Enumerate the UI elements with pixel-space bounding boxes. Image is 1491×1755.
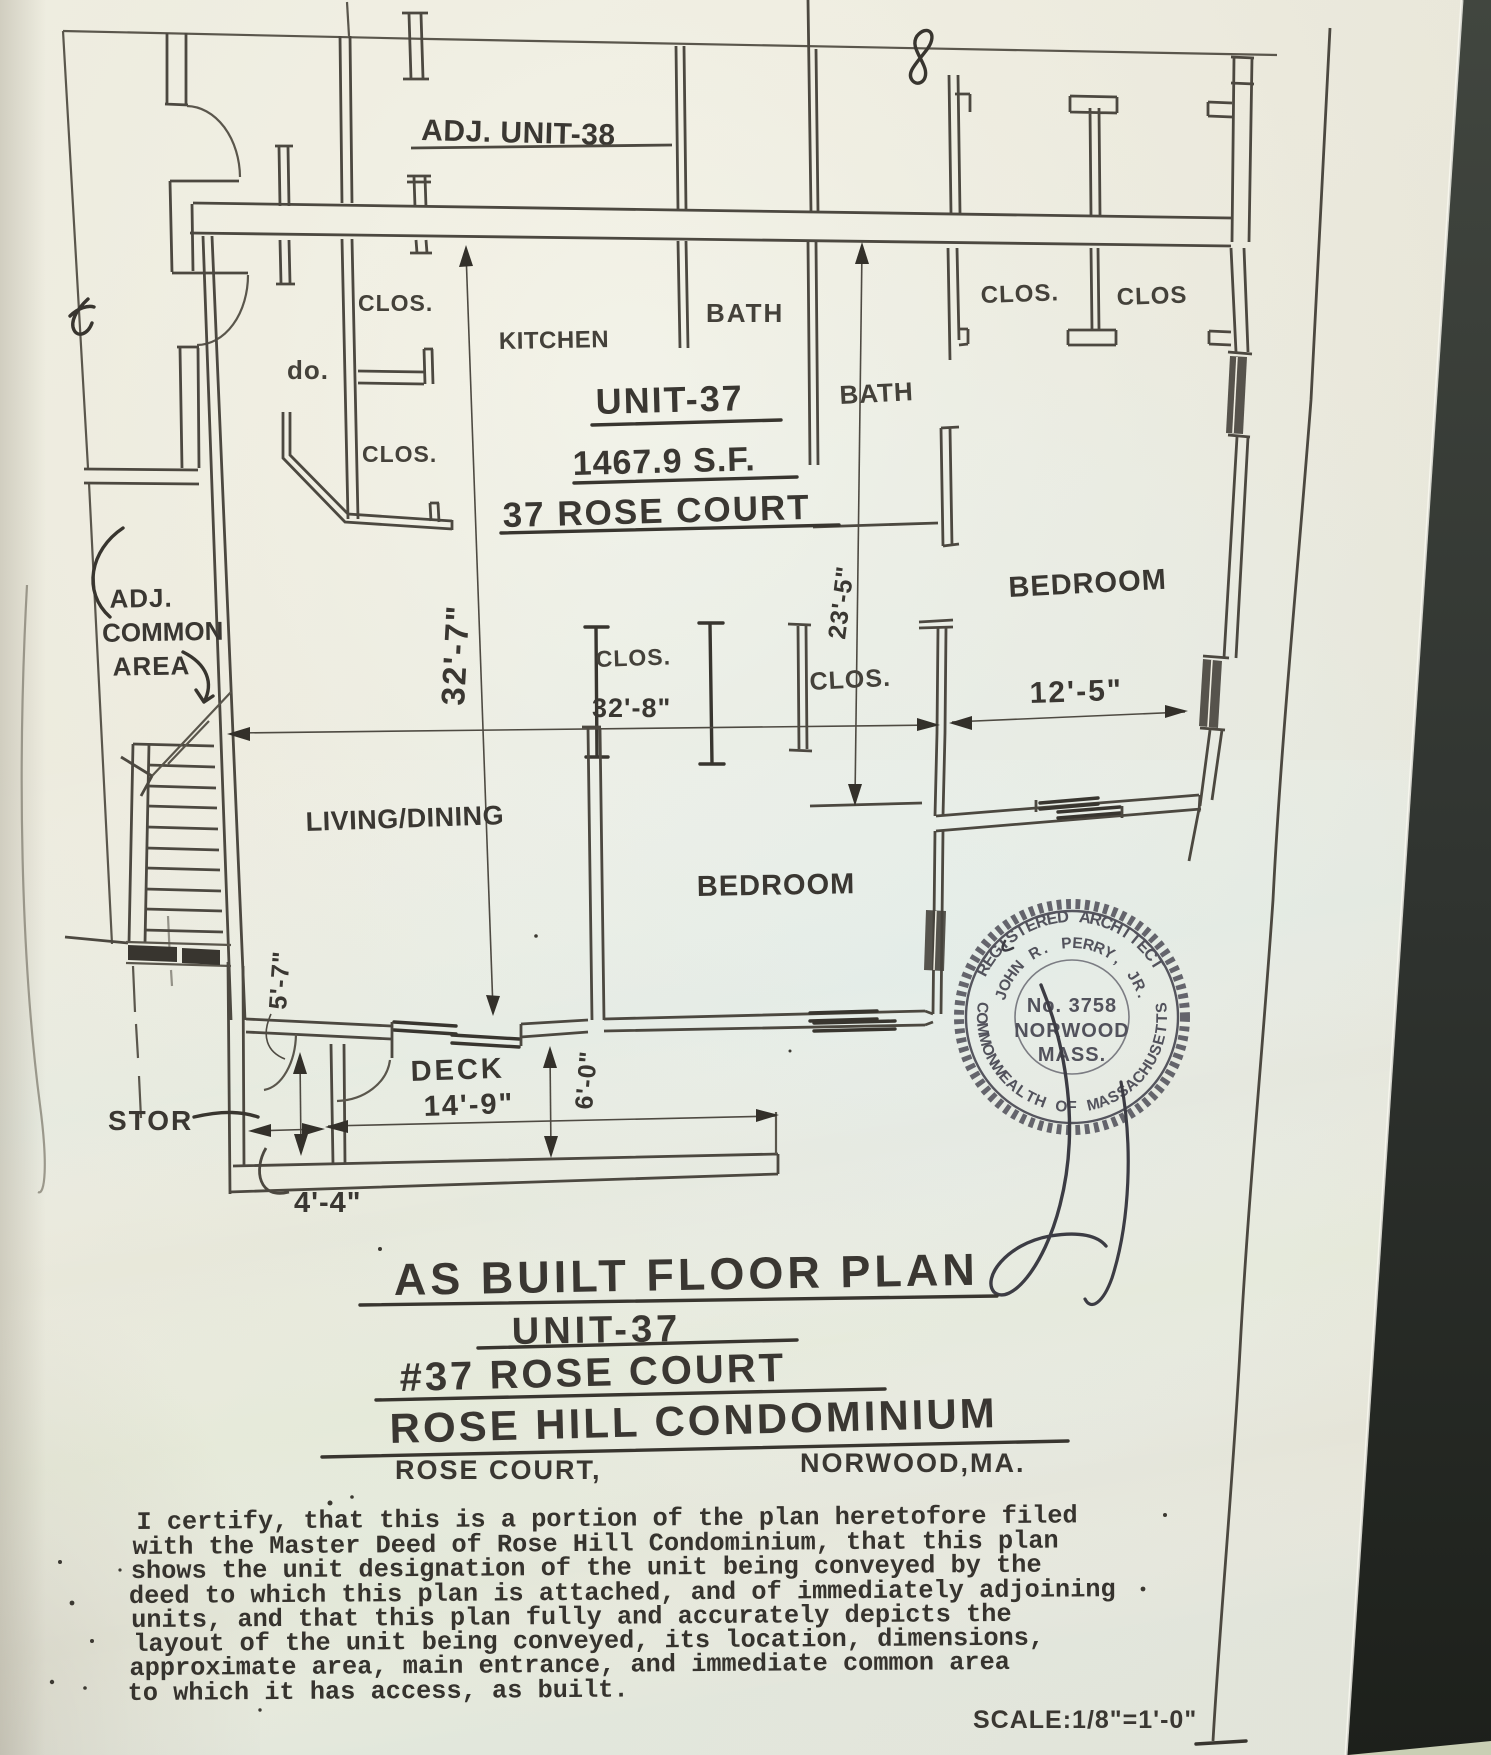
svg-text:S: S [1153,1002,1171,1014]
svg-text:ROSE COURT,: ROSE COURT, [395,1455,602,1485]
svg-text:CLOS.: CLOS. [358,290,433,316]
svg-text:NORWOOD: NORWOOD [1014,1020,1130,1042]
svg-text:O: O [1054,1098,1068,1116]
svg-text:AREA: AREA [112,650,190,681]
svg-text:to which it has access, as bui: to which it has access, as built. [128,1676,629,1708]
svg-text:BEDROOM: BEDROOM [697,868,856,903]
svg-text:ADJ.: ADJ. [109,583,173,614]
svg-text:BATH: BATH [839,376,915,410]
svg-text:32'-7": 32'-7" [434,603,476,706]
svg-text:1467.9 S.F.: 1467.9 S.F. [572,440,756,483]
svg-text:KITCHEN: KITCHEN [499,326,610,355]
svg-text:5'-7": 5'-7" [264,950,296,1011]
svg-text:14'-9": 14'-9" [423,1088,515,1123]
svg-text:P: P [1061,935,1073,953]
svg-text:BATH: BATH [706,298,784,328]
svg-text:SCALE:1/8"=1'-0": SCALE:1/8"=1'-0" [973,1706,1197,1734]
svg-text:CLOS.: CLOS. [809,664,892,696]
svg-text:12'-5": 12'-5" [1029,674,1124,710]
svg-text:CLOS: CLOS [1116,282,1188,311]
svg-text:COMMON: COMMON [102,616,224,648]
svg-text:MASS.: MASS. [1038,1044,1106,1066]
svg-text:D: D [1056,908,1070,927]
svg-text:T: T [1154,1013,1171,1023]
svg-text:CLOS.: CLOS. [362,441,437,467]
svg-text:CLOS.: CLOS. [980,279,1059,309]
svg-text:do.: do. [287,355,329,385]
svg-text:DECK: DECK [410,1053,505,1088]
svg-text:STOR: STOR [108,1105,193,1136]
svg-text:4'-4": 4'-4" [294,1187,362,1219]
svg-text:UNIT-37: UNIT-37 [595,377,744,422]
svg-text:32'-8": 32'-8" [592,693,671,723]
svg-text:6'-0": 6'-0" [570,1049,603,1110]
svg-text:NORWOOD,MA.: NORWOOD,MA. [800,1448,1026,1478]
svg-text:No. 3758: No. 3758 [1027,995,1117,1017]
svg-text:CLOS.: CLOS. [595,643,671,672]
